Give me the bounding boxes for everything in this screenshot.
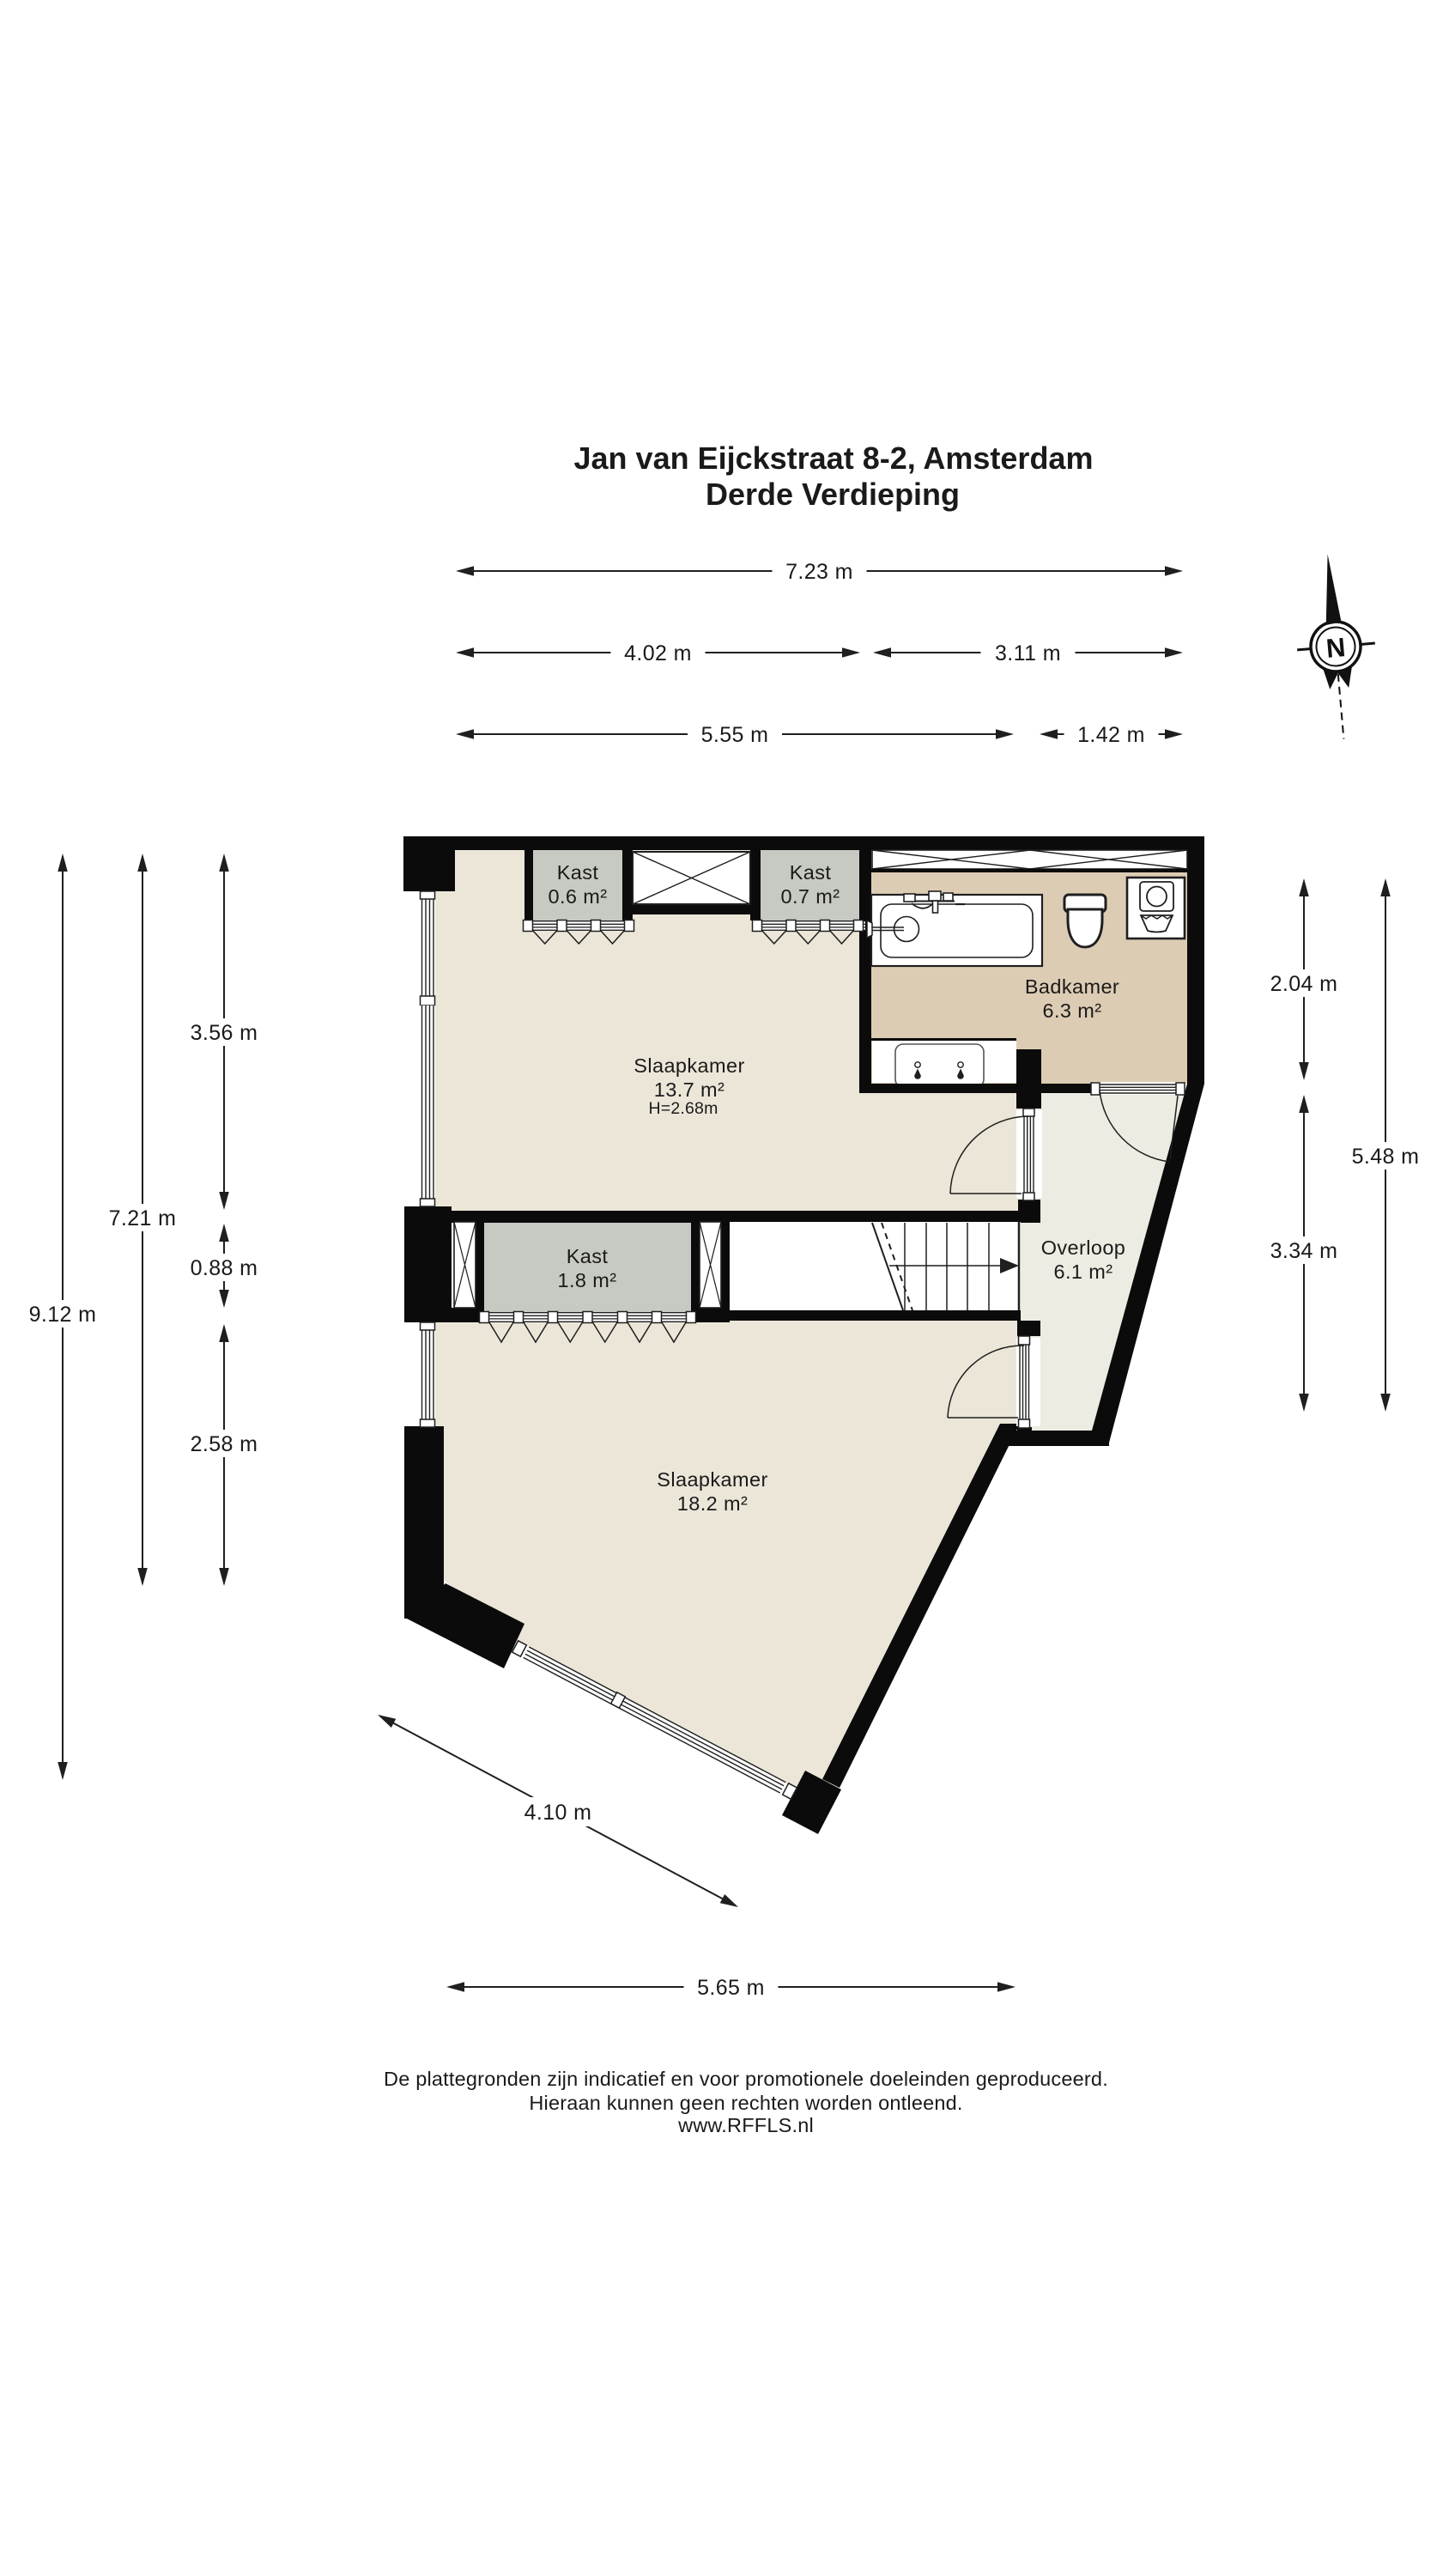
svg-text:0.88 m: 0.88 m (191, 1256, 258, 1280)
svg-text:13.7 m²: 13.7 m² (654, 1078, 724, 1101)
svg-text:9.12 m: 9.12 m (29, 1303, 97, 1327)
svg-text:Overloop: Overloop (1041, 1236, 1126, 1259)
svg-text:7.23 m: 7.23 m (785, 560, 853, 584)
svg-text:3.11 m: 3.11 m (995, 641, 1061, 665)
svg-text:3.34 m: 3.34 m (1270, 1239, 1338, 1263)
svg-text:Hieraan kunnen geen rechten wo: Hieraan kunnen geen rechten worden ontle… (529, 2092, 962, 2114)
svg-text:5.65 m: 5.65 m (697, 1976, 765, 2000)
svg-text:Jan van Eijckstraat 8-2, Amste: Jan van Eijckstraat 8-2, Amsterdam (574, 440, 1094, 476)
svg-text:Kast: Kast (567, 1245, 609, 1267)
svg-text:1.8 m²: 1.8 m² (558, 1269, 617, 1291)
svg-text:Badkamer: Badkamer (1025, 975, 1119, 998)
svg-text:3.56 m: 3.56 m (191, 1021, 258, 1045)
svg-text:18.2 m²: 18.2 m² (677, 1492, 748, 1515)
svg-text:5.48 m: 5.48 m (1352, 1145, 1420, 1169)
svg-text:H=2.68m: H=2.68m (648, 1099, 718, 1118)
svg-text:Kast: Kast (790, 861, 832, 884)
svg-text:www.RFFLS.nl: www.RFFLS.nl (677, 2114, 814, 2136)
svg-text:6.3 m²: 6.3 m² (1043, 999, 1102, 1022)
svg-text:1.42 m: 1.42 m (1077, 723, 1145, 747)
svg-text:7.21 m: 7.21 m (109, 1206, 177, 1230)
svg-text:0.7 m²: 0.7 m² (781, 885, 840, 908)
svg-text:Derde Verdieping: Derde Verdieping (706, 477, 960, 512)
svg-text:Slaapkamer: Slaapkamer (634, 1054, 744, 1077)
svg-text:2.58 m: 2.58 m (191, 1432, 258, 1456)
svg-text:6.1 m²: 6.1 m² (1054, 1261, 1113, 1283)
svg-text:0.6 m²: 0.6 m² (549, 885, 608, 908)
svg-text:5.55 m: 5.55 m (701, 723, 769, 747)
svg-text:2.04 m: 2.04 m (1270, 972, 1338, 996)
svg-text:Slaapkamer: Slaapkamer (657, 1468, 767, 1491)
svg-text:N: N (1325, 632, 1346, 664)
svg-text:4.10 m: 4.10 m (524, 1801, 592, 1825)
svg-text:Kast: Kast (557, 861, 599, 884)
svg-text:De plattegronden zijn indicati: De plattegronden zijn indicatief en voor… (384, 2068, 1108, 2090)
svg-text:4.02 m: 4.02 m (624, 641, 692, 665)
